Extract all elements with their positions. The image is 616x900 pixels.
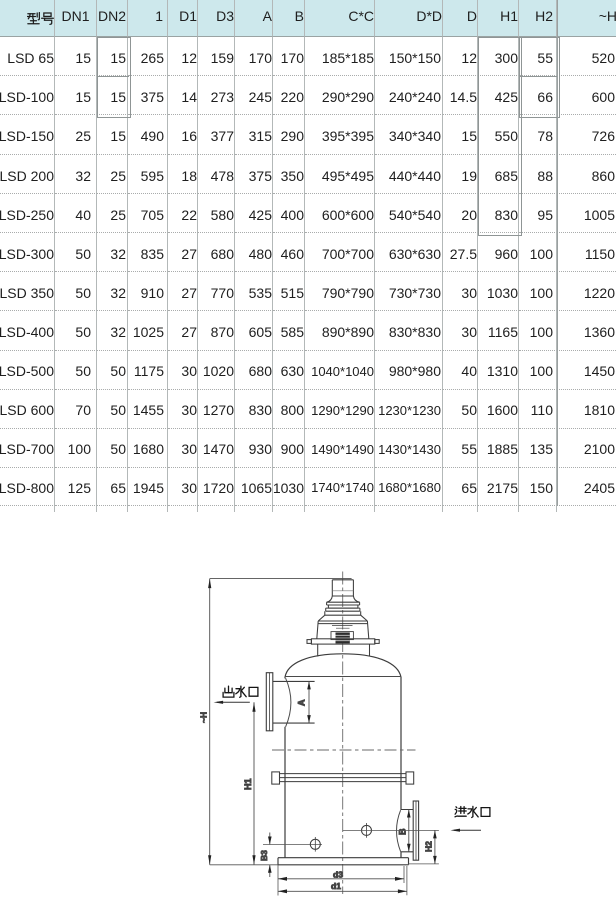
svg-text:~H: ~H <box>199 712 209 723</box>
svg-text:B: B <box>398 828 408 835</box>
svg-text:H2: H2 <box>424 841 434 852</box>
svg-text:d3: d3 <box>333 870 343 880</box>
svg-text:B3: B3 <box>259 850 269 861</box>
svg-text:d1: d1 <box>331 881 341 891</box>
svg-text:H1: H1 <box>243 778 253 790</box>
svg-text:A: A <box>297 699 307 706</box>
